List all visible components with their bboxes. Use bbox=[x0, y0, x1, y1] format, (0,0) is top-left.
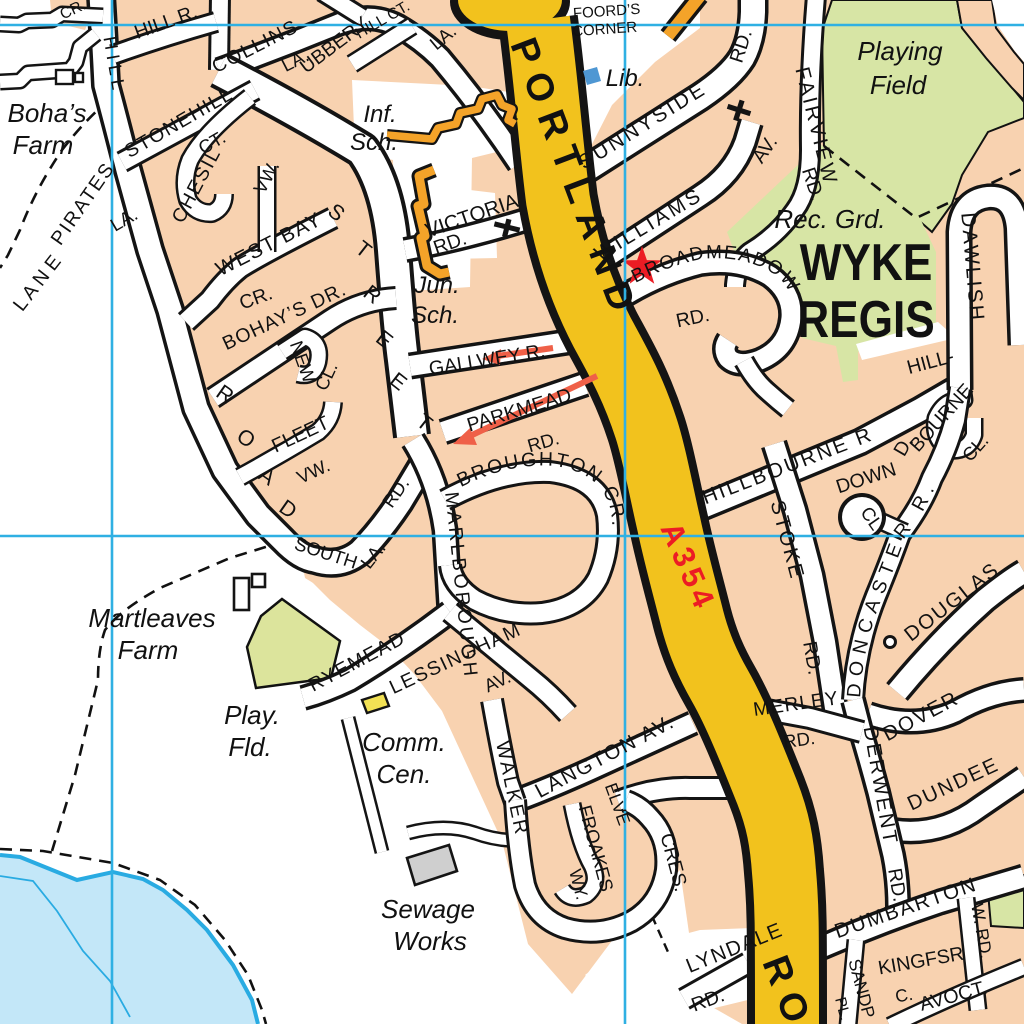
svg-text:PIRATES: PIRATES bbox=[47, 158, 120, 249]
svg-text:Inf.: Inf. bbox=[363, 101, 396, 128]
svg-text:RD.: RD. bbox=[782, 727, 816, 752]
svg-text:L A N E: L A N E bbox=[9, 251, 66, 315]
svg-text:Comm.: Comm. bbox=[362, 727, 446, 757]
svg-text:Play.: Play. bbox=[224, 700, 280, 730]
svg-text:Field: Field bbox=[870, 70, 928, 100]
svg-text:Farm: Farm bbox=[13, 130, 74, 160]
svg-text:Lib.: Lib. bbox=[606, 65, 645, 92]
svg-text:REGIS: REGIS bbox=[797, 291, 935, 349]
svg-text:C.: C. bbox=[894, 984, 915, 1007]
svg-text:Sch.: Sch. bbox=[350, 129, 398, 156]
svg-text:Fld.: Fld. bbox=[228, 732, 271, 762]
svg-text:Rec. Grd.: Rec. Grd. bbox=[774, 204, 885, 234]
svg-text:Farm: Farm bbox=[118, 635, 179, 665]
svg-text:Sewage: Sewage bbox=[381, 894, 475, 924]
svg-text:Jun.: Jun. bbox=[413, 272, 459, 299]
svg-text:Sch.: Sch. bbox=[411, 302, 459, 329]
svg-text:WYKE: WYKE bbox=[800, 234, 933, 292]
svg-text:Cen.: Cen. bbox=[377, 759, 432, 789]
svg-text:Playing: Playing bbox=[857, 36, 943, 66]
svg-text:Boha’s: Boha’s bbox=[7, 98, 86, 128]
svg-text:Martleaves: Martleaves bbox=[88, 603, 215, 633]
svg-text:Works: Works bbox=[393, 926, 467, 956]
